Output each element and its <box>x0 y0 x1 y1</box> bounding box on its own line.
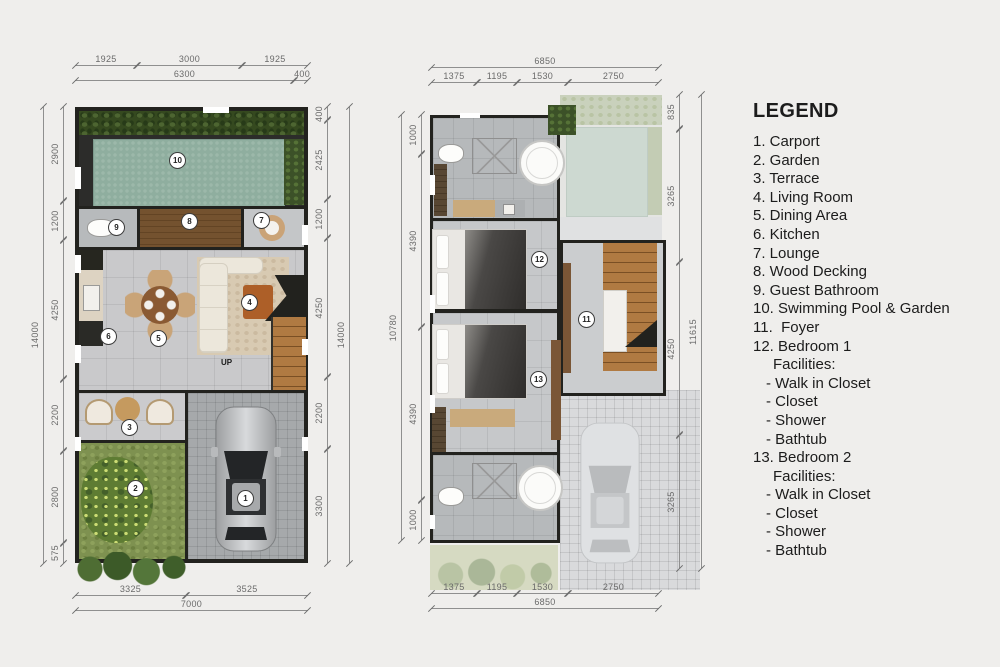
legend-item: - Bathtub <box>753 542 995 561</box>
dimension-segment: 1200 <box>314 199 328 238</box>
dim-label: 4250 <box>666 338 676 359</box>
dim-label: 11615 <box>688 319 698 345</box>
window-gap <box>75 167 81 189</box>
dim-label: 1375 <box>431 582 477 592</box>
dim-label: 6850 <box>431 56 659 66</box>
dimension-segment: 1925 <box>242 52 308 66</box>
dim-col-ground-left-total: 14000 <box>30 107 44 563</box>
bathtub-icon <box>519 140 565 186</box>
stair-landing <box>603 290 627 352</box>
legend-item: 1. Carport <box>753 133 995 152</box>
legend-item: 12. Bedroom 1 <box>753 338 995 357</box>
window-gap <box>75 345 81 363</box>
legend-item: 10. Swimming Pool & Garden <box>753 300 995 319</box>
up-label: UP <box>221 358 232 367</box>
dim-label: 1200 <box>50 210 60 231</box>
sofa <box>199 263 228 353</box>
toilet-icon <box>438 144 464 163</box>
dim-col-ground-right-total: 14000 <box>336 107 350 563</box>
sliding-door <box>551 340 561 440</box>
dimension-segment: 3525 <box>186 582 308 596</box>
dining-table <box>141 286 179 324</box>
room-badge-6: 6 <box>100 328 117 345</box>
dim-label: 14000 <box>336 322 346 349</box>
bathtub-icon <box>517 465 563 511</box>
dim-col-upper-right-total: 11615 <box>688 95 702 568</box>
window-gap <box>302 339 308 355</box>
pool-planter <box>284 139 304 205</box>
dimension-segment: 2750 <box>568 69 659 83</box>
desk <box>450 409 515 427</box>
dimension-segment: 6300 <box>75 67 294 81</box>
dim-label: 1195 <box>477 582 517 592</box>
upper-building <box>430 115 560 543</box>
bathroom-2 <box>433 455 557 540</box>
window-gap <box>302 437 308 451</box>
dim-row-ground-top: 1925 3000 1925 <box>75 52 308 66</box>
car <box>211 403 281 555</box>
window-gap <box>75 437 81 451</box>
legend: LEGEND 1. Carport 2. Garden 3. Terrace 4… <box>753 100 995 561</box>
dimension-segment: 2200 <box>50 379 64 451</box>
shower-icon <box>472 463 517 499</box>
door-frame <box>563 263 571 373</box>
dimension-segment: 575 <box>50 543 64 563</box>
pillow <box>436 235 449 269</box>
dim-col-ground-left: 2900 1200 4250 2200 2800 575 <box>50 107 64 563</box>
dim-row-upper-top-total: 6850 <box>431 54 659 68</box>
dimension-segment: 400 <box>314 107 328 120</box>
dim-label: 1925 <box>242 54 308 64</box>
dimension-segment: 2750 <box>568 580 659 594</box>
room-badge-5: 5 <box>150 330 167 347</box>
wardrobe-cabinet <box>432 407 446 452</box>
dim-label: 1000 <box>408 509 418 530</box>
dimension-segment: 1195 <box>477 580 517 594</box>
dim-label: 10780 <box>388 314 398 341</box>
swimming-pool <box>93 139 285 207</box>
bathroom-1 <box>433 118 557 218</box>
garden-bush <box>81 457 153 543</box>
legend-item: 3. Terrace <box>753 170 995 189</box>
dim-label: 4250 <box>50 299 60 320</box>
dimension-segment: 3000 <box>137 52 242 66</box>
dim-label: 2800 <box>50 486 60 507</box>
dim-label: 3265 <box>666 491 676 512</box>
terrace-chair <box>85 399 113 425</box>
dim-label: 6850 <box>431 597 659 607</box>
kitchen-appliance <box>79 250 103 270</box>
dim-label: 4390 <box>408 403 418 424</box>
dimension-segment: 2200 <box>314 377 328 449</box>
dimension-segment: 3265 <box>666 435 680 568</box>
dim-label: 1200 <box>314 208 324 229</box>
bed-1 <box>432 229 527 312</box>
room-badge-8: 8 <box>181 213 198 230</box>
foreground-plants <box>72 552 192 586</box>
room-badge-13: 13 <box>530 371 547 388</box>
dim-col-upper-right: 835 3265 4250 3265 <box>666 95 680 568</box>
ghost-car-graphic <box>576 404 644 582</box>
dimension-segment: 1925 <box>75 52 137 66</box>
dim-label: 2200 <box>50 404 60 425</box>
dim-row-upper-bottom: 1375 1195 1530 2750 <box>431 580 659 594</box>
window-gap <box>460 113 480 118</box>
legend-item: Facilities: <box>753 356 995 375</box>
dim-label: 2750 <box>568 71 659 81</box>
pillow <box>436 329 449 360</box>
dim-label: 1375 <box>431 71 477 81</box>
roof-planter <box>548 105 576 135</box>
window-gap <box>430 175 435 195</box>
dim-label: 1530 <box>517 71 568 81</box>
terrace-chair <box>146 399 174 425</box>
vanity-cabinet <box>434 164 447 216</box>
upper-floor-plan: 11 12 13 <box>430 95 702 595</box>
room-badge-1: 1 <box>237 490 254 507</box>
dimension-segment: 14000 <box>336 107 350 563</box>
room-badge-10: 10 <box>169 152 186 169</box>
dim-label: 6300 <box>75 69 294 79</box>
dimension-segment: 4250 <box>666 262 680 435</box>
legend-item: 13. Bedroom 2 <box>753 449 995 468</box>
dimension-segment: 2900 <box>50 107 64 201</box>
window-gap <box>75 255 81 273</box>
dim-label: 835 <box>666 104 676 120</box>
legend-item: 8. Wood Decking <box>753 263 995 282</box>
legend-item: 11. Foyer <box>753 319 995 338</box>
room-badge-12: 12 <box>531 251 548 268</box>
legend-item: - Shower <box>753 523 995 542</box>
kitchen-sink <box>83 285 100 311</box>
dim-label: 575 <box>50 545 60 561</box>
dimension-segment: 835 <box>666 95 680 129</box>
dim-row-ground-bottom2: 7000 <box>75 597 308 611</box>
pillow <box>436 363 449 394</box>
room-badge-7: 7 <box>253 212 270 229</box>
dimension-segment: 7000 <box>75 597 308 611</box>
dim-label: 3525 <box>186 584 308 594</box>
dimension-segment: 11615 <box>688 95 702 568</box>
legend-item: 4. Living Room <box>753 189 995 208</box>
dimension-segment: 14000 <box>30 107 44 563</box>
stairs <box>271 317 306 390</box>
room-badge-11: 11 <box>578 311 595 328</box>
dim-label: 1000 <box>408 124 418 145</box>
legend-item: - Bathtub <box>753 431 995 450</box>
dim-label: 1195 <box>477 71 517 81</box>
shower-icon <box>472 138 517 174</box>
car-graphic <box>211 403 281 555</box>
dim-row-upper-bottom-total: 6850 <box>431 595 659 609</box>
legend-item: - Closet <box>753 393 995 412</box>
dim-row-ground-bottom: 3325 3525 <box>75 582 308 596</box>
dim-row-upper-top: 1375 1195 1530 2750 <box>431 69 659 83</box>
room-badge-3: 3 <box>121 419 138 436</box>
legend-item: - Shower <box>753 412 995 431</box>
legend-item: 6. Kitchen <box>753 226 995 245</box>
dim-col-upper-left: 1000 4390 4390 1000 <box>408 115 422 540</box>
legend-item: - Walk in Closet <box>753 375 995 394</box>
legend-list: 1. Carport 2. Garden 3. Terrace 4. Livin… <box>753 133 995 561</box>
legend-item: - Walk in Closet <box>753 486 995 505</box>
ghost-planter <box>648 127 662 215</box>
legend-item: - Closet <box>753 505 995 524</box>
floor-plan-sheet: UP <box>0 0 1000 667</box>
dim-label: 1925 <box>75 54 137 64</box>
dimension-segment: 4390 <box>408 327 422 500</box>
dim-label: 4390 <box>408 230 418 251</box>
dim-label: 3000 <box>137 54 242 64</box>
dim-row-ground-top2: 6300 400 <box>75 67 308 81</box>
dim-label: 4250 <box>314 297 324 318</box>
dimension-segment: 4250 <box>314 238 328 377</box>
dim-label: 7000 <box>75 599 308 609</box>
bed-2 <box>432 324 527 399</box>
vanity-counter <box>453 200 495 217</box>
dimension-segment: 1530 <box>517 580 568 594</box>
dim-label: 14000 <box>30 322 40 349</box>
dimension-segment: 4250 <box>50 240 64 379</box>
dimension-segment: 3265 <box>666 129 680 262</box>
dimension-segment: 4390 <box>408 154 422 327</box>
pillow <box>436 272 449 306</box>
window-gap <box>430 395 435 413</box>
sink-icon <box>503 204 515 215</box>
dimension-segment: 1375 <box>431 69 477 83</box>
dimension-segment: 1375 <box>431 580 477 594</box>
legend-item: 2. Garden <box>753 152 995 171</box>
hedge <box>79 111 304 135</box>
blanket <box>465 230 526 311</box>
dimension-segment: 400 <box>294 67 308 81</box>
dimension-segment: 3300 <box>314 449 328 563</box>
foyer-wing <box>560 240 666 396</box>
dim-label: 3265 <box>666 185 676 206</box>
dim-label: 2900 <box>50 143 60 164</box>
dimension-segment: 1530 <box>517 69 568 83</box>
dimension-segment: 1000 <box>408 115 422 154</box>
legend-item: 7. Lounge <box>753 245 995 264</box>
dimension-segment: 1000 <box>408 500 422 540</box>
dimension-segment: 10780 <box>388 115 402 540</box>
window-gap <box>302 225 308 245</box>
ghost-pool <box>566 127 648 217</box>
dimension-segment: 6850 <box>431 595 659 609</box>
wall <box>79 206 304 209</box>
legend-item: 5. Dining Area <box>753 207 995 226</box>
dim-col-upper-left-total: 10780 <box>388 115 402 540</box>
room-badge-4: 4 <box>241 294 258 311</box>
dimension-segment: 1195 <box>477 69 517 83</box>
dim-label: 3300 <box>314 495 324 516</box>
room-badge-9: 9 <box>108 219 125 236</box>
dim-label: 3325 <box>75 584 186 594</box>
dimension-segment: 2800 <box>50 451 64 543</box>
blanket <box>465 325 526 398</box>
dim-label: 2200 <box>314 402 324 423</box>
dim-col-ground-right: 400 2425 1200 4250 2200 3300 <box>314 107 328 563</box>
dimension-segment: 2425 <box>314 120 328 199</box>
window-gap <box>430 515 435 529</box>
dimension-segment: 3325 <box>75 582 186 596</box>
dim-label: 400 <box>294 69 310 79</box>
dim-label: 2750 <box>568 582 659 592</box>
legend-item: Facilities: <box>753 468 995 487</box>
legend-item: 9. Guest Bathroom <box>753 282 995 301</box>
legend-title: LEGEND <box>753 100 995 123</box>
toilet-icon <box>438 487 464 506</box>
room-badge-2: 2 <box>127 480 144 497</box>
dim-label: 2425 <box>314 149 324 170</box>
ground-floor-plan: UP <box>75 107 308 563</box>
dim-label: 1530 <box>517 582 568 592</box>
window-gap <box>430 295 435 313</box>
dimension-segment: 1200 <box>50 201 64 240</box>
dimension-segment: 6850 <box>431 54 659 68</box>
window-gap <box>203 107 229 113</box>
